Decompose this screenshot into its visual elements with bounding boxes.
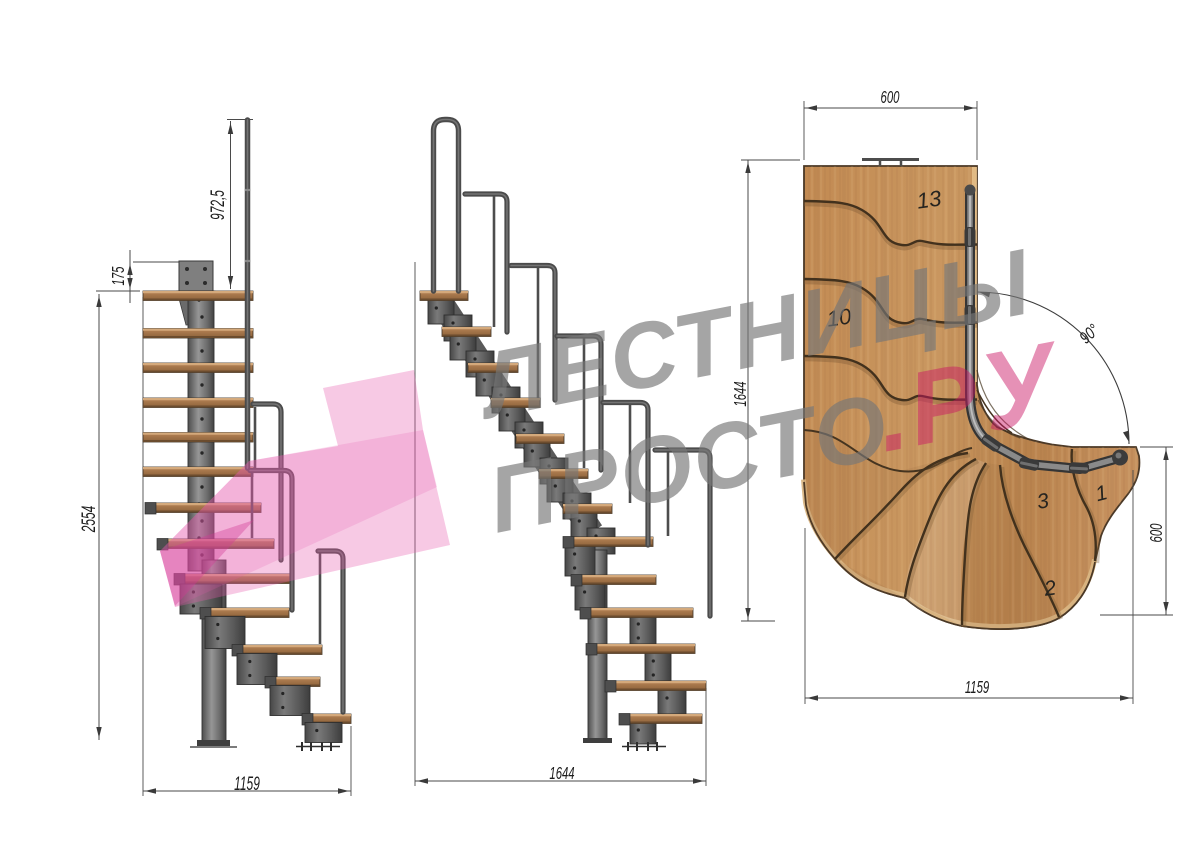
svg-text:1644: 1644 [549, 763, 574, 783]
svg-text:2554: 2554 [79, 506, 99, 533]
svg-text:13: 13 [915, 185, 943, 213]
svg-text:1159: 1159 [965, 677, 990, 697]
svg-text:600: 600 [881, 87, 900, 107]
svg-text:600: 600 [1146, 523, 1166, 542]
svg-text:1159: 1159 [234, 774, 260, 794]
svg-text:972,5: 972,5 [208, 190, 228, 220]
svg-text:175: 175 [108, 266, 128, 285]
